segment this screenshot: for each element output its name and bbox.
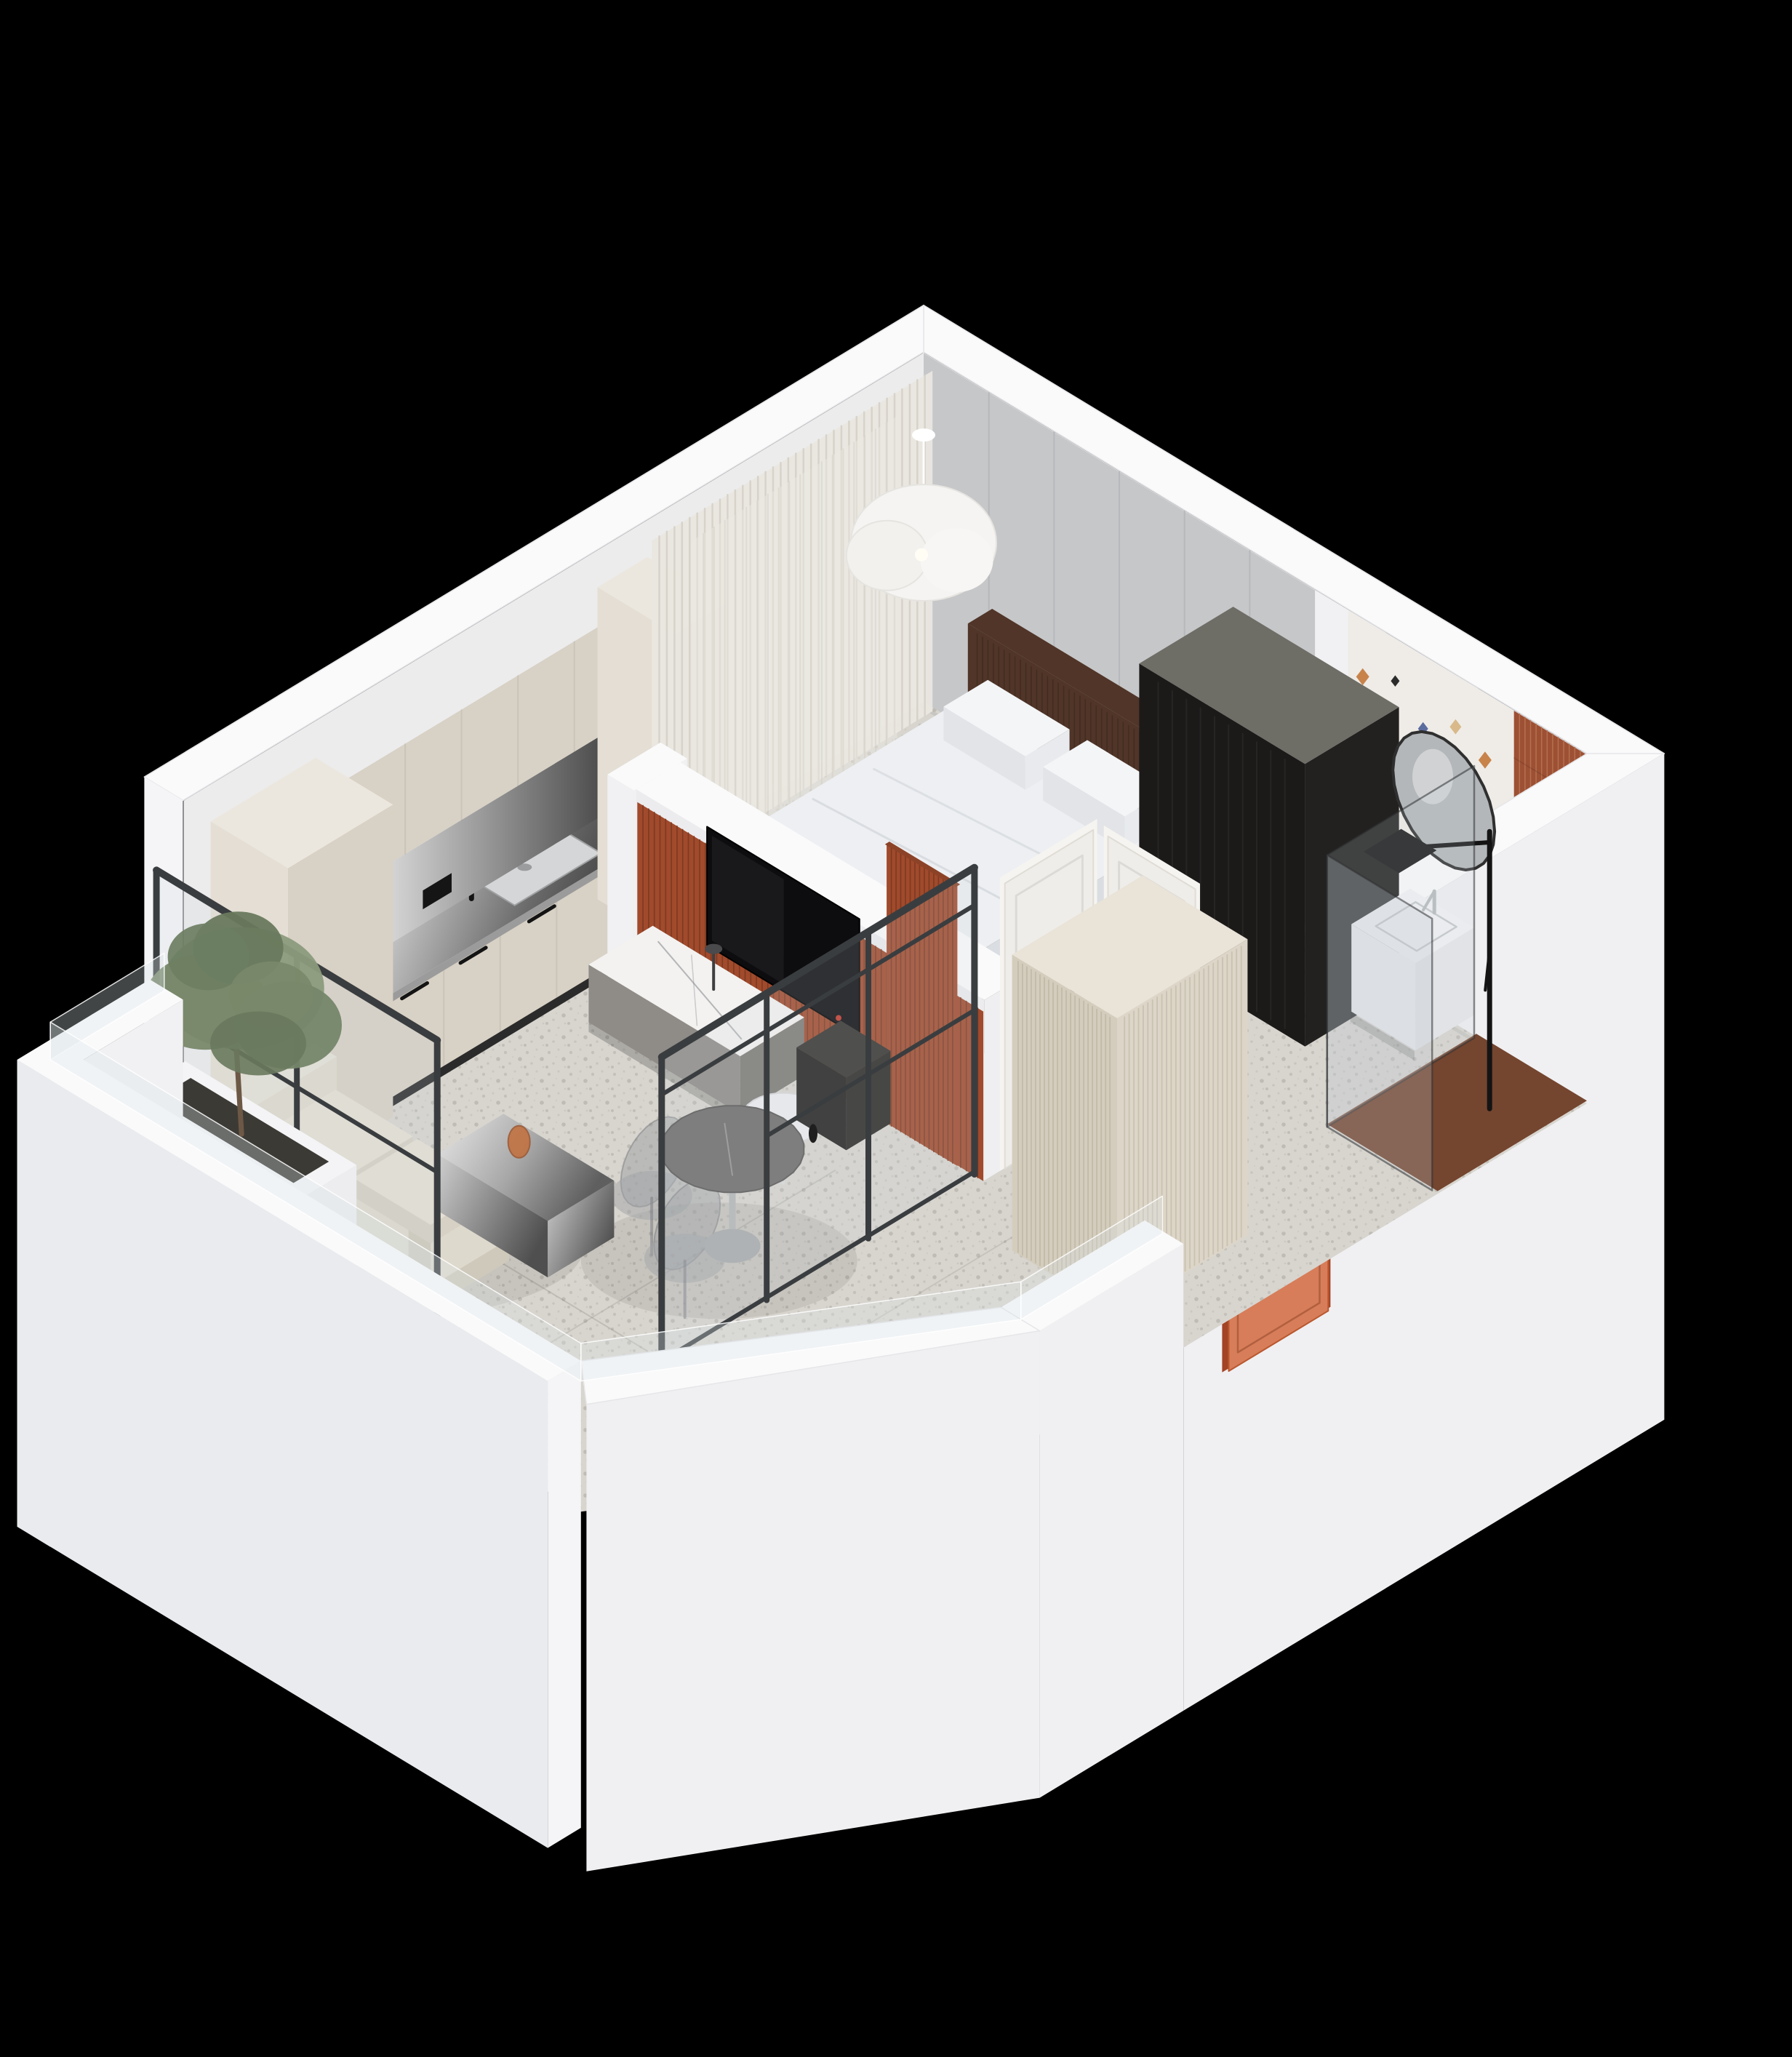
console-table-lamp-shade bbox=[705, 944, 722, 954]
parapet-chamfer-exterior bbox=[586, 1331, 1039, 1872]
coffee-table-vase bbox=[508, 1126, 530, 1158]
floorplan-stage bbox=[0, 0, 1792, 2057]
isometric-apartment-render bbox=[0, 0, 1792, 2057]
pendant-lamp-lobe-right bbox=[921, 528, 993, 592]
pendant-bulb-glow bbox=[915, 548, 928, 562]
dining-glass-door-handle bbox=[809, 1124, 817, 1143]
tree-foliage-7 bbox=[210, 1012, 306, 1076]
pendant-ceiling-cap bbox=[912, 428, 935, 442]
